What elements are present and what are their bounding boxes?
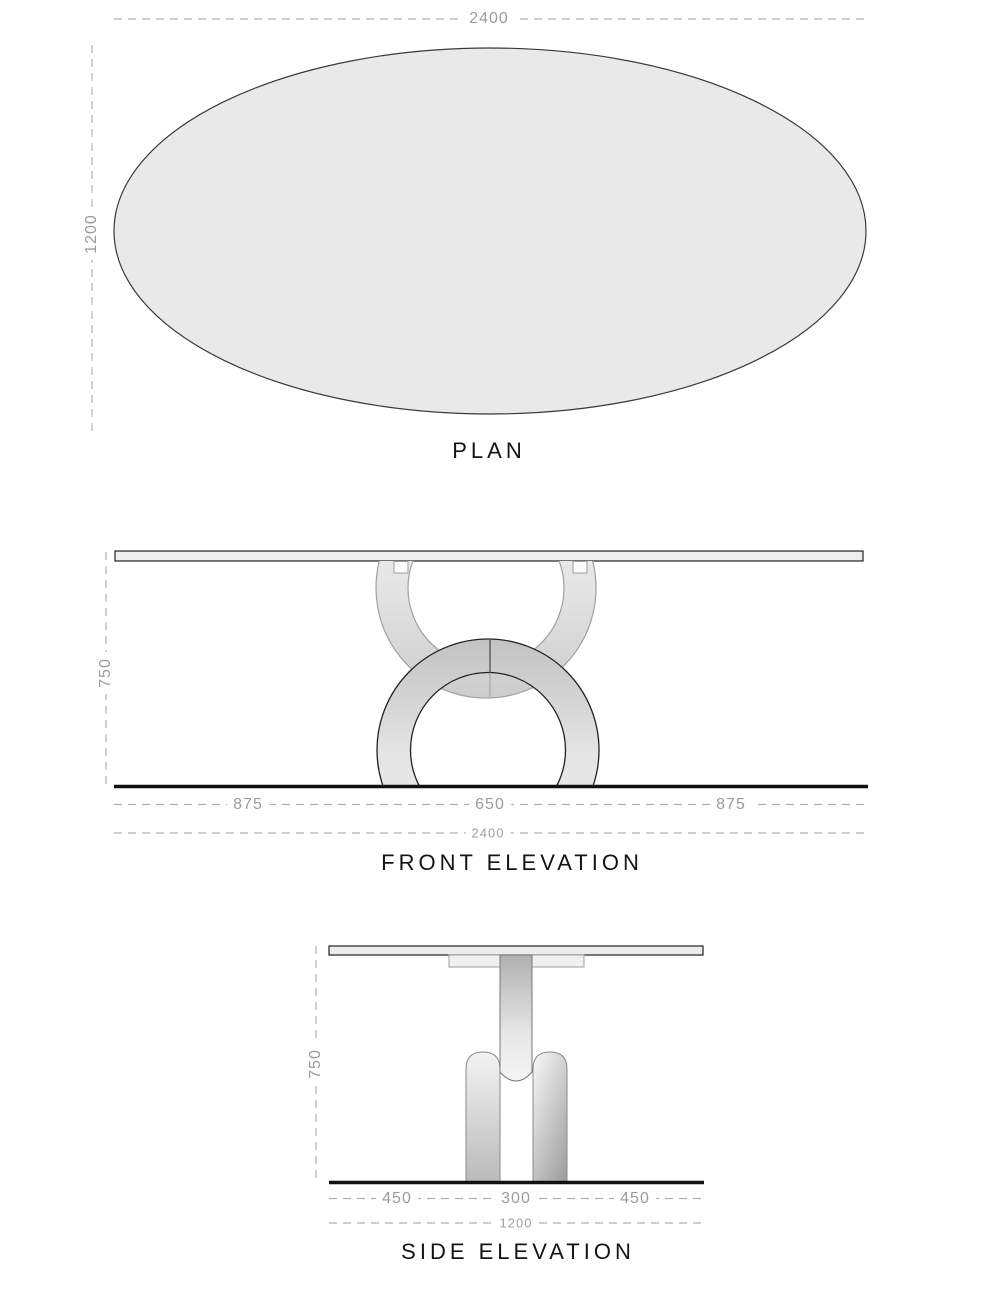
side-base-width-dimension: 300 xyxy=(495,1190,537,1208)
front-elevation-title: FRONT ELEVATION xyxy=(377,850,647,876)
ring-mount-tab-right xyxy=(573,562,587,574)
side-lower-ring-post-right xyxy=(533,1052,567,1182)
front-base-width-dimension: 650 xyxy=(469,796,511,814)
side-left-overhang-dimension: 450 xyxy=(376,1190,418,1208)
front-total-width-dimension: 2400 xyxy=(466,826,511,841)
side-height-dimension: 750 xyxy=(307,1043,325,1085)
front-left-overhang-dimension: 875 xyxy=(227,796,269,814)
ring-mount-tab-left xyxy=(394,562,408,574)
side-tabletop xyxy=(329,946,703,955)
orthographic-drawing xyxy=(0,0,1006,1302)
front-tabletop xyxy=(115,551,863,561)
plan-width-dimension: 2400 xyxy=(463,10,515,28)
side-upper-ring-column xyxy=(500,955,532,1081)
side-elevation-title: SIDE ELEVATION xyxy=(397,1239,639,1265)
side-lower-ring-post-left xyxy=(466,1052,500,1182)
plan-view-title: PLAN xyxy=(448,438,529,464)
front-right-overhang-dimension: 875 xyxy=(710,796,752,814)
side-total-width-dimension: 1200 xyxy=(494,1216,539,1231)
drawing-sheet: 2400 1200 PLAN 750 875 650 875 2400 FRON… xyxy=(0,0,1006,1302)
front-height-dimension: 750 xyxy=(97,652,115,694)
side-elevation-view xyxy=(316,946,704,1223)
plan-depth-dimension: 1200 xyxy=(83,208,101,260)
plan-tabletop-ellipse xyxy=(114,48,866,414)
side-right-overhang-dimension: 450 xyxy=(614,1190,656,1208)
plan-view xyxy=(92,19,866,431)
